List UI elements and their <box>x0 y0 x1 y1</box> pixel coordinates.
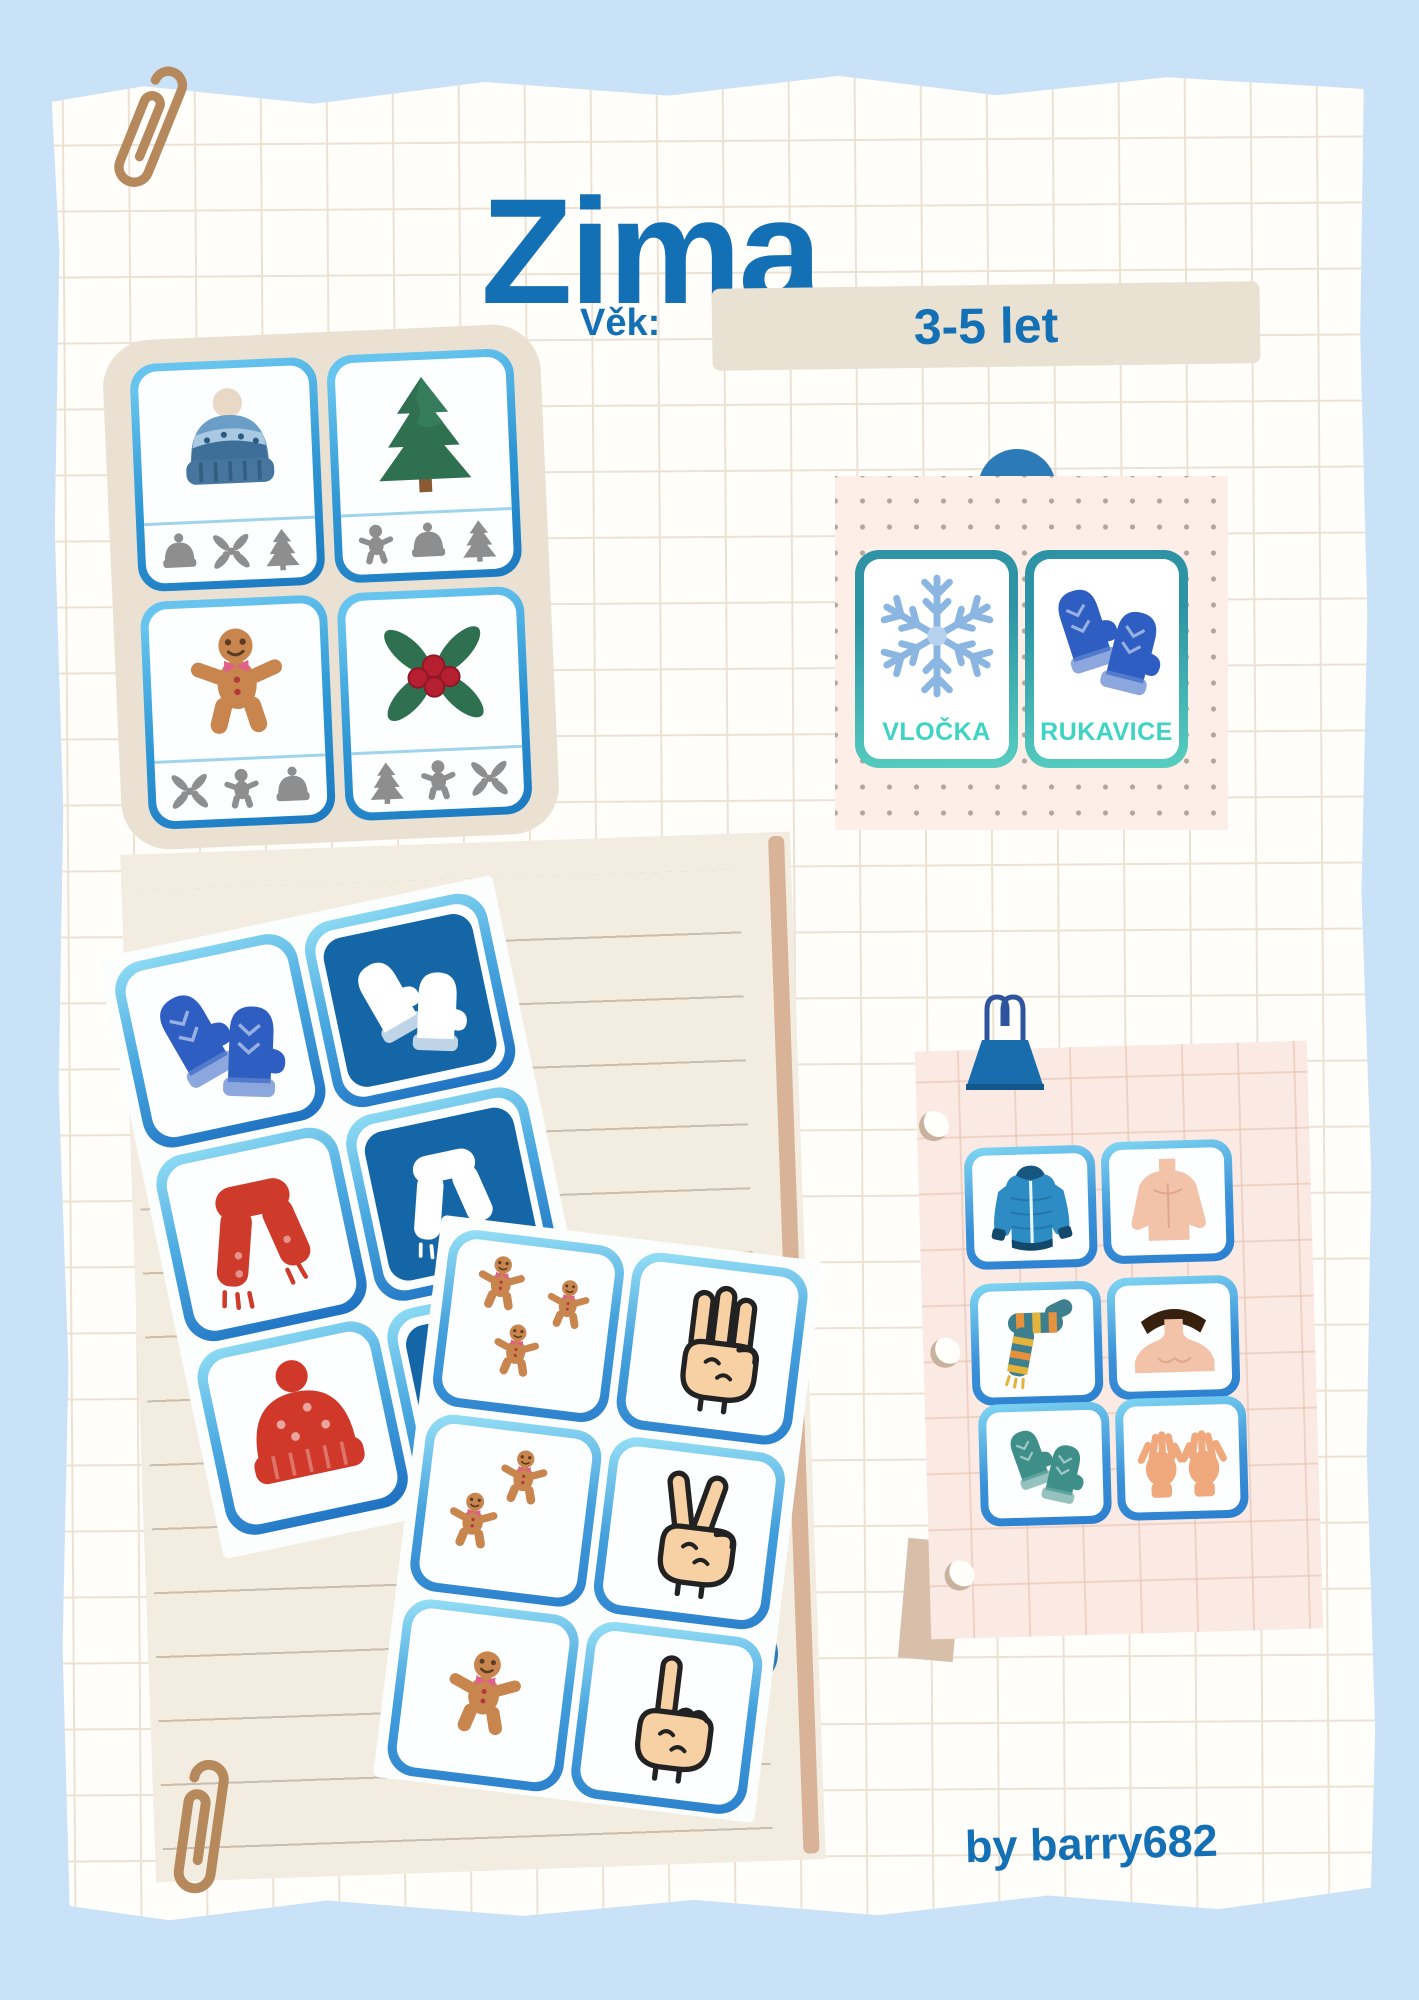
matching-card-pine-tree <box>326 348 523 584</box>
word-card-mittens: RUKAVICE <box>1025 550 1188 768</box>
matching-card-gingerbread <box>139 594 336 830</box>
pine-tree-silhouette-icon <box>362 759 410 807</box>
holly-silhouette-icon <box>166 767 214 815</box>
gingerbread-man-icon <box>148 603 326 764</box>
worksheet-poster: Zima Věk: 3-5 let <box>0 0 1419 2000</box>
red-winter-hat-icon <box>216 1339 390 1517</box>
hand-one-finger-icon <box>593 1642 741 1794</box>
red-scarf-icon <box>172 1143 351 1326</box>
card-two-gingerbread <box>407 1412 604 1610</box>
card-three-gingerbread <box>430 1227 627 1425</box>
word-card-snowflake: VLOČKA <box>855 550 1018 768</box>
binder-clip-icon <box>956 990 1054 1092</box>
gingerbread-man-icon <box>482 1317 549 1389</box>
striped-scarf-icon <box>984 1288 1089 1398</box>
snowflake-icon <box>868 567 1006 710</box>
card-hand-one-finger <box>568 1619 765 1817</box>
age-value-box: 3-5 let <box>711 281 1260 371</box>
card-teal-mittens <box>978 1401 1112 1527</box>
open-hands-icon <box>1129 1403 1234 1513</box>
body-matching-paper <box>915 1041 1323 1640</box>
white-mittens-icon <box>320 910 500 1090</box>
pine-tree-silhouette-icon <box>259 525 307 573</box>
hand-three-fingers-icon <box>638 1273 786 1425</box>
card-blue-mittens <box>110 929 331 1154</box>
hand-two-fingers-icon <box>616 1457 764 1609</box>
option-icons-row <box>155 756 328 821</box>
matching-card-holly <box>336 586 533 822</box>
winter-hat-silhouette-icon <box>155 530 203 578</box>
blue-mittens-icon <box>1039 567 1175 708</box>
winter-jacket-icon <box>978 1153 1083 1263</box>
option-icons-row <box>341 510 514 575</box>
word-card-label: VLOČKA <box>882 718 991 747</box>
author-credit: by barry682 <box>964 1815 1218 1874</box>
gingerbread-man-icon <box>466 1249 536 1323</box>
word-cards-paper: VLOČKA RUKAVICE <box>835 476 1228 830</box>
option-icons-row <box>144 519 317 584</box>
winter-hat-icon <box>137 365 315 526</box>
matching-card-winter-hat <box>129 356 326 592</box>
card-striped-scarf <box>969 1280 1103 1406</box>
neck-icon <box>1121 1283 1226 1393</box>
holly-silhouette-icon <box>466 754 514 802</box>
holly-silhouette-icon <box>207 527 255 575</box>
card-neck <box>1106 1275 1240 1401</box>
card-one-gingerbread <box>384 1596 581 1794</box>
card-red-scarf <box>151 1122 372 1347</box>
winter-hat-silhouette-icon <box>404 519 452 567</box>
gingerbread-silhouette-icon <box>217 765 265 813</box>
matching-board <box>101 323 561 852</box>
card-red-hat <box>192 1316 413 1541</box>
gingerbread-man-icon <box>437 1485 509 1561</box>
card-hands <box>1115 1395 1249 1521</box>
pine-tree-silhouette-icon <box>455 517 503 565</box>
blue-mittens-icon <box>130 948 311 1133</box>
winter-hat-silhouette-icon <box>269 763 317 811</box>
age-value: 3-5 let <box>913 296 1058 356</box>
teal-mittens-icon <box>996 1412 1095 1516</box>
matching-board-grid <box>129 348 533 830</box>
gingerbread-silhouette-icon <box>352 521 400 569</box>
word-card-label: RUKAVICE <box>1040 718 1173 747</box>
option-icons-row <box>351 748 524 813</box>
gingerbread-silhouette-icon <box>414 757 462 805</box>
card-mittens-pictogram <box>299 888 520 1113</box>
holly-icon <box>345 594 523 755</box>
torso-icon <box>1115 1147 1220 1257</box>
card-winter-jacket <box>964 1145 1098 1271</box>
age-label: Věk: <box>580 302 660 345</box>
card-hand-three-fingers <box>613 1250 810 1448</box>
card-torso <box>1100 1139 1234 1265</box>
gingerbread-man-icon <box>429 1639 537 1751</box>
counting-sheet <box>373 1215 823 1824</box>
pine-tree-icon <box>334 356 512 517</box>
card-hand-two-fingers <box>591 1434 788 1632</box>
